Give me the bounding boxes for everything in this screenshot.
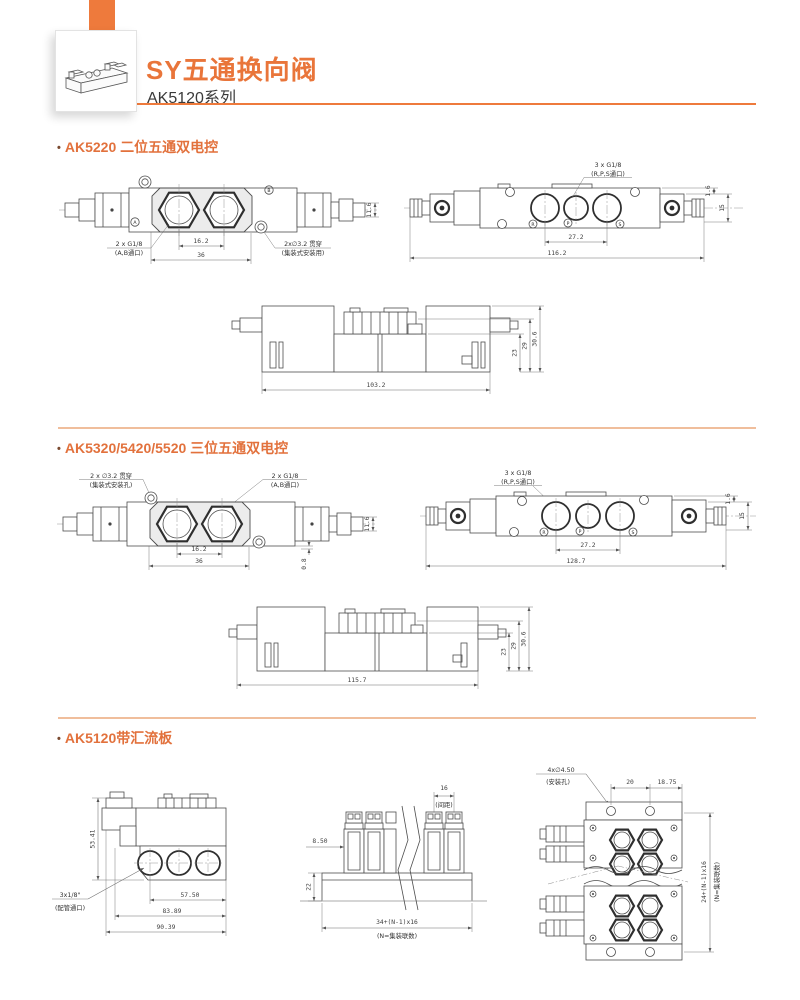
- port-label: 2 x G1/8: [116, 241, 143, 248]
- port-label-note: (A,B通口): [271, 480, 299, 489]
- dim-pitch: 27.2: [580, 542, 595, 549]
- valve-outline: A B: [59, 176, 377, 236]
- port-label: 3 x G1/8: [505, 470, 532, 477]
- dim-h1: 23: [501, 648, 508, 656]
- port-label-note: (R,P,S通口): [591, 169, 625, 178]
- valve-outline: [232, 306, 518, 372]
- page-title: SY五通换向阀: [146, 50, 318, 87]
- header-accent-tab: [89, 0, 115, 30]
- valve-unit: [344, 812, 364, 873]
- drawing-ak5320-top-view: 2 x ∅3.2 贯穿 (集装式安装孔) 2 x G1/8 (A,B通口): [55, 468, 385, 580]
- section-title-ak5220: •AK5220 二位五通双电控: [57, 137, 218, 157]
- port-label: 2 x G1/8: [272, 473, 299, 480]
- dim-h: 22: [306, 883, 313, 891]
- dim-pitch: 27.2: [568, 234, 583, 241]
- port-label: 3 x G1/8: [595, 162, 622, 169]
- valve-outline: [102, 792, 226, 880]
- port-label-note: (R,P,S通口): [501, 477, 535, 486]
- dim-h2: 29: [511, 642, 518, 650]
- drawing-ak5220-side-view: 103.2 23 29 30.6: [222, 272, 552, 402]
- dim-length: 115.7: [348, 677, 367, 684]
- dim-length: 116.2: [548, 250, 567, 257]
- dim-v: 24+(N-1)x16: [701, 861, 708, 903]
- dim-width: 36: [195, 558, 203, 565]
- section-divider: [58, 427, 756, 429]
- manifold-outline: [300, 806, 487, 910]
- section-label: AK5320/5420/5520 三位五通双电控: [65, 440, 288, 456]
- dim-width: 36: [197, 252, 205, 259]
- dim-length-note: (N=集装联数): [377, 931, 417, 940]
- dim-w2: 83.89: [163, 908, 182, 915]
- section-title-ak5120-manifold: •AK5120带汇流板: [57, 728, 172, 748]
- dim-length: 128.7: [567, 558, 586, 565]
- dim-pitch: 16: [440, 785, 448, 792]
- valve-unit: [424, 812, 444, 873]
- dim-height: 53.41: [90, 829, 97, 848]
- dim-offset: 8.50: [312, 838, 327, 845]
- dim-h2: 29: [522, 342, 529, 350]
- dim-pitch: 16.2: [193, 238, 208, 245]
- dim-edge: 1.6: [705, 185, 712, 197]
- dim-height: 11.6: [366, 202, 373, 217]
- valve-outline: [229, 607, 506, 671]
- bullet-icon: •: [57, 733, 61, 745]
- drawing-manifold-side-view: 53.41 57.50 83.89 90.39 3x1/8" (配管通口): [40, 768, 280, 960]
- dim-height: 11.6: [364, 516, 371, 531]
- hole-label-note: (集装式安装孔): [90, 480, 133, 489]
- dim-pitch-note: (间距): [435, 801, 453, 809]
- dim-w3: 90.39: [157, 924, 176, 931]
- section-divider: [58, 717, 756, 719]
- dim-h3: 30.6: [521, 631, 528, 646]
- drawing-ak5220-top-view: A B 16.2 36 11.6 2 x G1/8 (A,B通口) 2x∅3.2…: [57, 166, 387, 271]
- hole-label-note: (集装式安装用): [282, 248, 325, 257]
- drawing-manifold-top-view: 4x∅4.50 (安装孔): [498, 758, 763, 968]
- port-letter-p: P: [579, 529, 582, 535]
- valve-outline: R P S: [404, 184, 744, 229]
- dim-h3: 30.6: [532, 331, 539, 346]
- hole-label: 2x∅3.2 贯穿: [284, 239, 322, 248]
- port-letter-p: P: [567, 221, 570, 227]
- port-letter-s: S: [632, 530, 635, 536]
- dim-v-note: (N=集装联数): [712, 862, 721, 902]
- manifold-outline: [540, 802, 688, 960]
- barb-fitting: [540, 896, 584, 912]
- dim-pitch: 16.2: [191, 546, 206, 553]
- section-label: AK5120带汇流板: [65, 730, 172, 746]
- dim-edge: 0.8: [301, 558, 308, 570]
- drawing-ak5320-side-view: 115.7 23 29 30.6: [215, 585, 545, 697]
- port-letter-b: B: [267, 188, 270, 194]
- barb-fitting: [540, 846, 584, 862]
- bullet-icon: •: [57, 142, 61, 154]
- port-label-note: (配管通口): [55, 903, 85, 912]
- hole-label: 2 x ∅3.2 贯穿: [90, 471, 132, 480]
- drawing-ak5220-bottom-view: R P S 3 x G1/8 (R,P,S通口) 27.2 116.2 1.6: [402, 158, 747, 270]
- valve-outline: [57, 492, 375, 550]
- dim-h1: 23: [512, 349, 519, 357]
- barb-fitting: [540, 826, 584, 842]
- dim-w1: 57.50: [181, 892, 200, 899]
- bullet-icon: •: [57, 443, 61, 455]
- valve-unit: [444, 812, 464, 873]
- dim-side: 15: [739, 512, 746, 520]
- valve-unit-partial: [384, 812, 396, 873]
- section-title-ak5320: •AK5320/5420/5520 三位五通双电控: [57, 438, 288, 458]
- valve-unit: [364, 812, 384, 873]
- valve-thumbnail-icon: [56, 31, 136, 111]
- dim-edge: 1.6: [725, 493, 732, 505]
- port-label: 3x1/8": [60, 892, 81, 899]
- product-thumbnail: [55, 30, 137, 112]
- leader-labels: 4x∅4.50 (安装孔): [536, 767, 609, 805]
- dim-length: 34+(N-1)x16: [376, 919, 418, 926]
- dim-a: 20: [626, 779, 634, 786]
- header-rule: [137, 103, 756, 105]
- valve-outline: R P S: [420, 492, 756, 537]
- drawing-ak5320-bottom-view: 3 x G1/8 (R,P,S通口) R P S: [418, 466, 758, 578]
- datasheet-page: SY五通换向阀 AK5120系列 •AK5220 二位五通双电控: [0, 0, 800, 1000]
- drawing-manifold-front-view: 16 (间距) 8.50 22 34+(N-1)x16 (N=集装联数): [282, 770, 497, 955]
- hole-label: 4x∅4.50: [547, 767, 574, 774]
- hole-label-note: (安装孔): [546, 777, 570, 786]
- barb-fitting: [540, 920, 584, 936]
- dim-length: 103.2: [367, 382, 386, 389]
- section-label: AK5220 二位五通双电控: [65, 139, 218, 155]
- port-label-note: (A,B通口): [115, 248, 143, 257]
- port-letter-s: S: [619, 222, 622, 228]
- dim-b: 18.75: [658, 779, 677, 786]
- dim-side: 15: [719, 204, 726, 212]
